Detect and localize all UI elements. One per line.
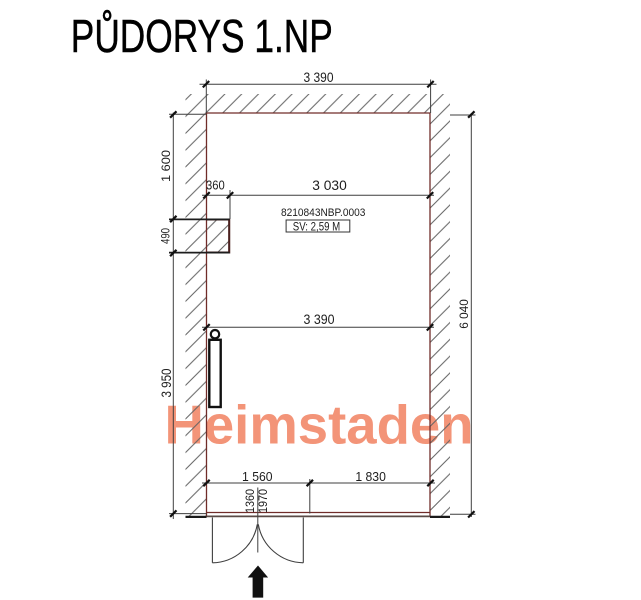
svg-text:1360: 1360 [245,489,257,513]
svg-text:1970: 1970 [258,489,270,513]
svg-text:PŮDORYS 1.NP: PŮDORYS 1.NP [71,9,333,62]
svg-text:3 390: 3 390 [304,69,334,85]
svg-text:3 030: 3 030 [312,178,347,193]
svg-text:360: 360 [206,179,225,193]
svg-text:1 560: 1 560 [242,470,273,484]
svg-text:490: 490 [159,228,173,244]
svg-text:3 950: 3 950 [159,369,174,398]
svg-text:6 040: 6 040 [457,299,471,329]
svg-text:8210843NBP.0003: 8210843NBP.0003 [281,207,366,219]
svg-text:3 390: 3 390 [304,312,335,327]
svg-text:1 600: 1 600 [159,150,173,182]
svg-text:1 830: 1 830 [355,470,386,484]
